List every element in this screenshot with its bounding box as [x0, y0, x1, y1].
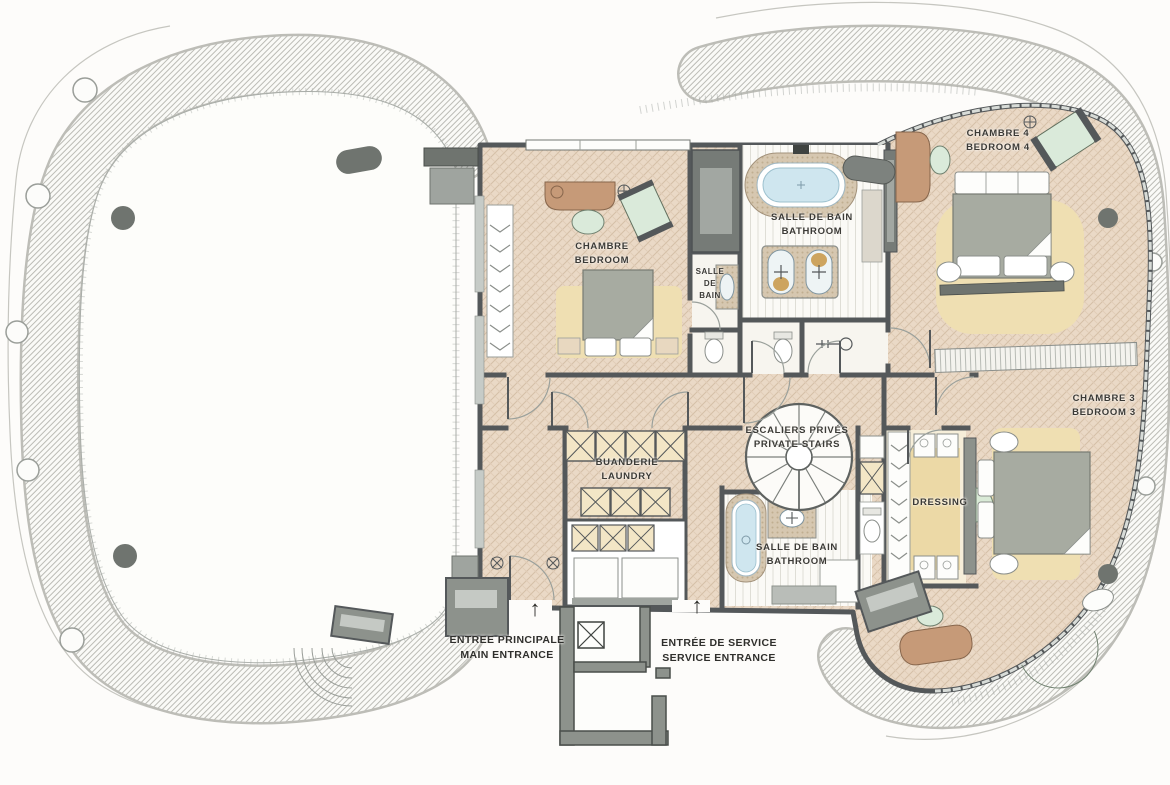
side-table [937, 262, 961, 282]
service-shaft [560, 607, 670, 745]
chair [930, 146, 950, 174]
bed-blanket [994, 452, 1090, 554]
label-stairs: ESCALIERS PRIVÉS PRIVATE STAIRS [745, 424, 848, 452]
left-wall-windows [475, 196, 484, 548]
side-table [990, 432, 1018, 452]
floor-plan-canvas: CHAMBRE BEDROOM SALLE DE BAIN SALLE DE B… [0, 0, 1170, 785]
pillow [585, 338, 616, 356]
toilet [705, 332, 723, 363]
main-entrance-arrow-icon: ↑ [530, 598, 541, 620]
stair-column [860, 436, 884, 494]
pillow [620, 338, 651, 356]
foot-cushion [1004, 256, 1047, 276]
terrace-left-interior [79, 92, 456, 663]
banquette [772, 586, 836, 604]
floor-plan-drawing [0, 0, 1170, 785]
closet-x-row-mid [581, 488, 670, 516]
plant-dot [1098, 208, 1118, 228]
cabinet [896, 132, 930, 202]
plant-dot [1098, 564, 1118, 584]
label-entrance-main: ENTREE PRINCIPALE MAIN ENTRANCE [449, 633, 564, 663]
label-entrance-service: ENTRÉE DE SERVICE SERVICE ENTRANCE [661, 636, 777, 666]
bedroom1-window [526, 140, 690, 150]
pillow [978, 460, 994, 496]
side-table [1050, 262, 1074, 282]
headboard [955, 172, 1049, 194]
foot-cushion [957, 256, 1000, 276]
bath-faucet [793, 145, 809, 154]
hanging-closet [888, 432, 910, 584]
shower-wall [862, 190, 882, 262]
label-bath-main: SALLE DE BAIN BATHROOM [771, 211, 853, 239]
service-entrance-arrow-icon: ↑ [692, 595, 703, 617]
skylight-dot [113, 544, 137, 568]
label-laundry: BUANDERIE LAUNDRY [596, 456, 659, 484]
lift-block [566, 520, 686, 606]
wardrobe [487, 205, 513, 357]
label-bedroom3: CHAMBRE 3 BEDROOM 3 [1072, 392, 1136, 420]
toilet [860, 502, 884, 554]
label-bath-small: SALLE DE BAIN [696, 266, 725, 302]
label-bedroom1: CHAMBRE BEDROOM [575, 240, 630, 268]
skylight-dot [111, 206, 135, 230]
ceiling-symbol [618, 185, 630, 197]
side-table [990, 554, 1018, 574]
toilet [774, 332, 792, 363]
label-bath-guest: SALLE DE BAIN BATHROOM [756, 541, 838, 569]
pillow [978, 502, 994, 538]
label-dressing: DRESSING [912, 496, 967, 510]
entrance-bench [446, 578, 508, 636]
nightstand [558, 338, 580, 354]
bathtub-water [736, 504, 756, 572]
label-bedroom4: CHAMBRE 4 BEDROOM 4 [966, 127, 1030, 155]
chair [572, 210, 604, 234]
nightstand [656, 338, 678, 354]
